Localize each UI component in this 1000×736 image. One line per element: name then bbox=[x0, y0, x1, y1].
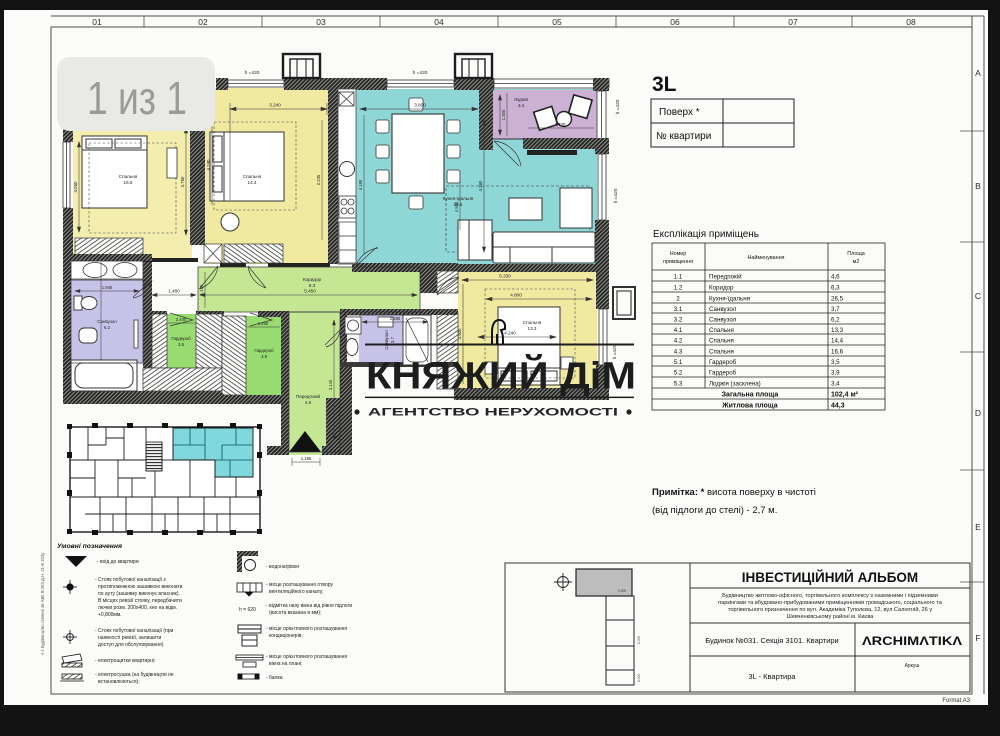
svg-text:1.2: 1.2 bbox=[674, 285, 683, 292]
svg-text:4.3: 4.3 bbox=[674, 349, 683, 356]
svg-text:0.000: 0.000 bbox=[618, 589, 627, 593]
svg-text:44,3: 44,3 bbox=[831, 403, 845, 410]
svg-text:2: 2 bbox=[676, 296, 680, 303]
svg-text:Кухня-їдальня: Кухня-їдальня bbox=[443, 196, 474, 201]
svg-text:6.2: 6.2 bbox=[104, 325, 111, 330]
svg-text:Гардероб: Гардероб bbox=[171, 336, 191, 341]
svg-text:- місце орієнтовного розташува: - місце орієнтовного розташування bbox=[266, 626, 347, 632]
svg-text:1.400: 1.400 bbox=[168, 289, 180, 294]
svg-text:Санвузол: Санвузол bbox=[384, 330, 389, 350]
svg-text:ч.1 Будівництво степені 4в АВК: ч.1 Будівництво степені 4в АВК В.203.Д.Н… bbox=[40, 552, 45, 655]
svg-text:Шевченківському районі м. Киє: Шевченківському районі м. Києва bbox=[787, 613, 875, 620]
svg-text:3L: 3L bbox=[652, 73, 677, 96]
svg-text:04: 04 bbox=[434, 17, 444, 27]
svg-text:16,6: 16,6 bbox=[831, 349, 844, 356]
svg-text:торгівельного призначення по в: торгівельного призначення по вул. Академ… bbox=[728, 606, 932, 613]
svg-text:3.800: 3.800 bbox=[414, 103, 426, 108]
svg-text:3.000: 3.000 bbox=[637, 674, 641, 683]
svg-text:C: C bbox=[975, 291, 981, 301]
svg-text:(від підлоги до стелі) - 2,7 м: (від підлоги до стелі) - 2,7 м. bbox=[652, 505, 777, 516]
svg-text:Спальня: Спальня bbox=[119, 174, 138, 179]
svg-text:Поверх *: Поверх * bbox=[659, 107, 700, 118]
svg-text:14.4: 14.4 bbox=[248, 180, 257, 185]
svg-text:06: 06 bbox=[670, 17, 680, 27]
svg-text:5.450: 5.450 bbox=[304, 289, 316, 294]
svg-text:h =420: h =420 bbox=[245, 70, 260, 76]
svg-text:- електрощитки квартирні;: - електрощитки квартирні; bbox=[95, 658, 155, 664]
svg-text:6,2: 6,2 bbox=[831, 317, 840, 324]
svg-text:Передпокій: Передпокій bbox=[296, 393, 321, 399]
svg-text:h =420: h =420 bbox=[413, 70, 428, 76]
svg-text:Площа: Площа bbox=[847, 251, 865, 257]
svg-text:D: D bbox=[975, 408, 981, 418]
svg-text:вікна на плані;: вікна на плані; bbox=[269, 661, 302, 667]
svg-text:5.1: 5.1 bbox=[674, 359, 683, 366]
svg-text:Коридор: Коридор bbox=[303, 277, 322, 282]
svg-text:Кухня-їдальня: Кухня-їдальня bbox=[709, 296, 750, 303]
svg-text:5.330: 5.330 bbox=[499, 274, 511, 279]
svg-text:16.6: 16.6 bbox=[124, 180, 133, 185]
svg-text:Гардероб: Гардероб bbox=[709, 359, 737, 366]
svg-text:паркінгами та вбудовано-прибуд: паркінгами та вбудовано-прибудованими пр… bbox=[718, 600, 943, 606]
svg-text:1.940: 1.940 bbox=[102, 285, 113, 290]
svg-text:- відмітка низу вікна від рівн: - відмітка низу вікна від рівня підлоги bbox=[266, 603, 352, 609]
svg-text:3.240: 3.240 bbox=[269, 103, 281, 108]
svg-text:102,4 м²: 102,4 м² bbox=[831, 392, 859, 399]
svg-text:Гардероб: Гардероб bbox=[709, 370, 737, 377]
svg-text:4.050: 4.050 bbox=[73, 181, 78, 193]
svg-text:Лоджія (засклена): Лоджія (засклена) bbox=[709, 381, 761, 388]
svg-text:05: 05 bbox=[552, 17, 562, 27]
svg-text:Аркуш: Аркуш bbox=[905, 663, 920, 669]
svg-text:вентиляційного каналу;: вентиляційного каналу; bbox=[269, 588, 323, 595]
svg-text:26,5: 26,5 bbox=[831, 296, 844, 303]
svg-text:1 из 1: 1 из 1 bbox=[87, 72, 187, 124]
svg-text:3.145: 3.145 bbox=[328, 379, 333, 390]
svg-text:4.6: 4.6 bbox=[305, 400, 312, 405]
svg-text:ІНВЕСТИЦІЙНИЙ АЛЬБОМ: ІНВЕСТИЦІЙНИЙ АЛЬБОМ bbox=[742, 570, 918, 585]
svg-text:В місцях ревізії стояку, перед: В місцях ревізії стояку, передбачити bbox=[98, 598, 182, 604]
svg-text:4.800: 4.800 bbox=[510, 293, 522, 298]
svg-text:м2: м2 bbox=[853, 259, 860, 265]
svg-text:3.9: 3.9 bbox=[261, 354, 268, 359]
svg-text:Спальня: Спальня bbox=[523, 320, 542, 325]
svg-text:03: 03 bbox=[316, 17, 326, 27]
svg-text:+0,800мм.: +0,800мм. bbox=[98, 612, 122, 618]
svg-text:13.3: 13.3 bbox=[528, 326, 537, 331]
svg-text:4.2: 4.2 bbox=[674, 338, 683, 345]
svg-text:- місце орієнтовного розташува: - місце орієнтовного розташування bbox=[266, 654, 347, 660]
svg-text:4,6: 4,6 bbox=[831, 274, 840, 281]
svg-text:лючки розм. 200х400, кно на ві: лючки розм. 200х400, кно на відм. bbox=[98, 605, 177, 611]
svg-text:Передпокій: Передпокій bbox=[709, 274, 742, 281]
svg-text:26.5: 26.5 bbox=[454, 202, 463, 207]
svg-text:1.305: 1.305 bbox=[501, 109, 506, 120]
svg-text:F: F bbox=[975, 633, 980, 643]
svg-text:4.380: 4.380 bbox=[478, 180, 483, 192]
svg-text:доступ для обслуговування): доступ для обслуговування) bbox=[98, 642, 164, 648]
svg-text:A: A bbox=[975, 68, 981, 78]
svg-text:3.5: 3.5 bbox=[178, 342, 185, 347]
svg-text:- водонагрівач: - водонагрівач bbox=[266, 564, 300, 570]
svg-text:кондиціонерів;: кондиціонерів; bbox=[269, 633, 303, 639]
svg-text:4.190: 4.190 bbox=[206, 159, 211, 171]
svg-text:(висота вказана в мм);: (висота вказана в мм); bbox=[269, 610, 321, 616]
svg-text:АГЕНТСТВО НЕРУХОМОСТІ: АГЕНТСТВО НЕРУХОМОСТІ bbox=[368, 407, 618, 419]
svg-text:4.240: 4.240 bbox=[504, 331, 516, 336]
svg-text:1.185: 1.185 bbox=[301, 456, 312, 461]
svg-text:3,4: 3,4 bbox=[831, 381, 840, 388]
svg-text:h =420: h =420 bbox=[613, 188, 619, 203]
svg-text:5.3: 5.3 bbox=[674, 381, 683, 388]
svg-text:2.280: 2.280 bbox=[390, 316, 401, 321]
svg-text:Санвузол: Санвузол bbox=[709, 317, 737, 324]
svg-text:3.2: 3.2 bbox=[674, 317, 683, 324]
svg-text:Спальня: Спальня bbox=[243, 174, 262, 179]
svg-text:3L - Квартира: 3L - Квартира bbox=[748, 672, 796, 681]
svg-text:3,9: 3,9 bbox=[831, 370, 840, 377]
svg-text:Загальна площа: Загальна площа bbox=[722, 392, 779, 399]
svg-text:- Стояк побутової каналізації: - Стояк побутової каналізації (при bbox=[95, 628, 174, 634]
svg-text:Лоджія: Лоджія bbox=[514, 97, 529, 102]
svg-text:Спальня: Спальня bbox=[709, 349, 734, 356]
svg-text:№ квартири: № квартири bbox=[656, 131, 711, 142]
svg-text:3,7: 3,7 bbox=[831, 306, 840, 313]
svg-text:3.000: 3.000 bbox=[637, 636, 641, 645]
svg-text:Житлова площа: Житлова площа bbox=[721, 403, 777, 410]
svg-text:по ауту (зашивку виконує власн: по ауту (зашивку виконує власник). bbox=[98, 591, 180, 597]
svg-text:Коридор: Коридор bbox=[709, 285, 734, 292]
svg-text:4.1: 4.1 bbox=[674, 327, 683, 334]
svg-text:Експлікація приміщень: Експлікація приміщень bbox=[653, 229, 759, 240]
svg-text:- місце розташування отвору: - місце розташування отвору bbox=[266, 582, 333, 588]
svg-text:02: 02 bbox=[198, 17, 208, 27]
svg-text:14,4: 14,4 bbox=[831, 338, 844, 345]
svg-text:Найменування: Найменування bbox=[748, 254, 785, 261]
svg-text:5.2: 5.2 bbox=[674, 370, 683, 377]
svg-text:- вхід до квартири: - вхід до квартири bbox=[97, 559, 139, 565]
svg-text:КНЯЖИЙ ДіМ: КНЯЖИЙ ДіМ bbox=[366, 353, 636, 398]
svg-text:- електросушка (на будівництві: - електросушка (на будівництві не bbox=[95, 672, 174, 678]
svg-text:Гардероб: Гардероб bbox=[254, 348, 274, 353]
svg-text:3.7: 3.7 bbox=[390, 336, 395, 343]
svg-text:встановлюються);: встановлюються); bbox=[98, 679, 140, 685]
svg-text:6,3: 6,3 bbox=[831, 285, 840, 292]
svg-text:4.180: 4.180 bbox=[358, 179, 363, 190]
svg-text:Спальня: Спальня bbox=[709, 338, 734, 345]
svg-text:протипожежною зашивкою виконат: протипожежною зашивкою виконати bbox=[98, 584, 183, 590]
svg-text:Format A3: Format A3 bbox=[942, 698, 970, 704]
svg-text:Будинок №031. Секція 3101. Ква: Будинок №031. Секція 3101. Квартири bbox=[705, 636, 839, 645]
svg-text:08: 08 bbox=[906, 17, 916, 27]
svg-text:B: B bbox=[975, 181, 981, 191]
svg-text:3,5: 3,5 bbox=[831, 359, 840, 366]
svg-text:E: E bbox=[975, 522, 981, 532]
svg-text:07: 07 bbox=[788, 17, 798, 27]
svg-text:Примітка: * висота поверху в ч: Примітка: * висота поверху в чистоті bbox=[652, 487, 816, 498]
svg-text:- балка: - балка bbox=[266, 675, 283, 681]
svg-text:3.900: 3.900 bbox=[457, 328, 462, 340]
svg-text:13,3: 13,3 bbox=[831, 327, 844, 334]
svg-text:Санвузол: Санвузол bbox=[709, 306, 737, 313]
svg-text:h = 620: h = 620 bbox=[239, 607, 256, 613]
svg-text:приміщення: приміщення bbox=[663, 259, 693, 265]
svg-text:- Стояк побутової каналізації: - Стояк побутової каналізації з bbox=[95, 577, 166, 583]
svg-text:Спальня: Спальня bbox=[709, 327, 734, 334]
svg-text:Санвузол: Санвузол bbox=[97, 319, 117, 324]
svg-text:Будівництво житлово-офісного,: Будівництво житлово-офісного, торгівельн… bbox=[722, 593, 938, 599]
svg-text:2.730: 2.730 bbox=[555, 122, 567, 127]
svg-text:01: 01 bbox=[92, 17, 102, 27]
svg-text:1.1: 1.1 bbox=[674, 274, 683, 281]
svg-text:Номер: Номер bbox=[670, 251, 687, 257]
svg-text:2.235: 2.235 bbox=[316, 174, 321, 185]
svg-text:3.4: 3.4 bbox=[518, 103, 525, 108]
svg-text:3.1: 3.1 bbox=[674, 306, 683, 313]
svg-text:наявності ревізії, залишити: наявності ревізії, залишити bbox=[98, 635, 162, 641]
svg-text:h =420: h =420 bbox=[615, 99, 621, 114]
svg-text:ΛRCHIMΛTIKΛ: ΛRCHIMΛTIKΛ bbox=[862, 634, 962, 648]
svg-text:Умовні позначення: Умовні позначення bbox=[57, 542, 122, 550]
svg-text:6.3: 6.3 bbox=[309, 283, 316, 288]
svg-text:3.750: 3.750 bbox=[180, 176, 185, 188]
